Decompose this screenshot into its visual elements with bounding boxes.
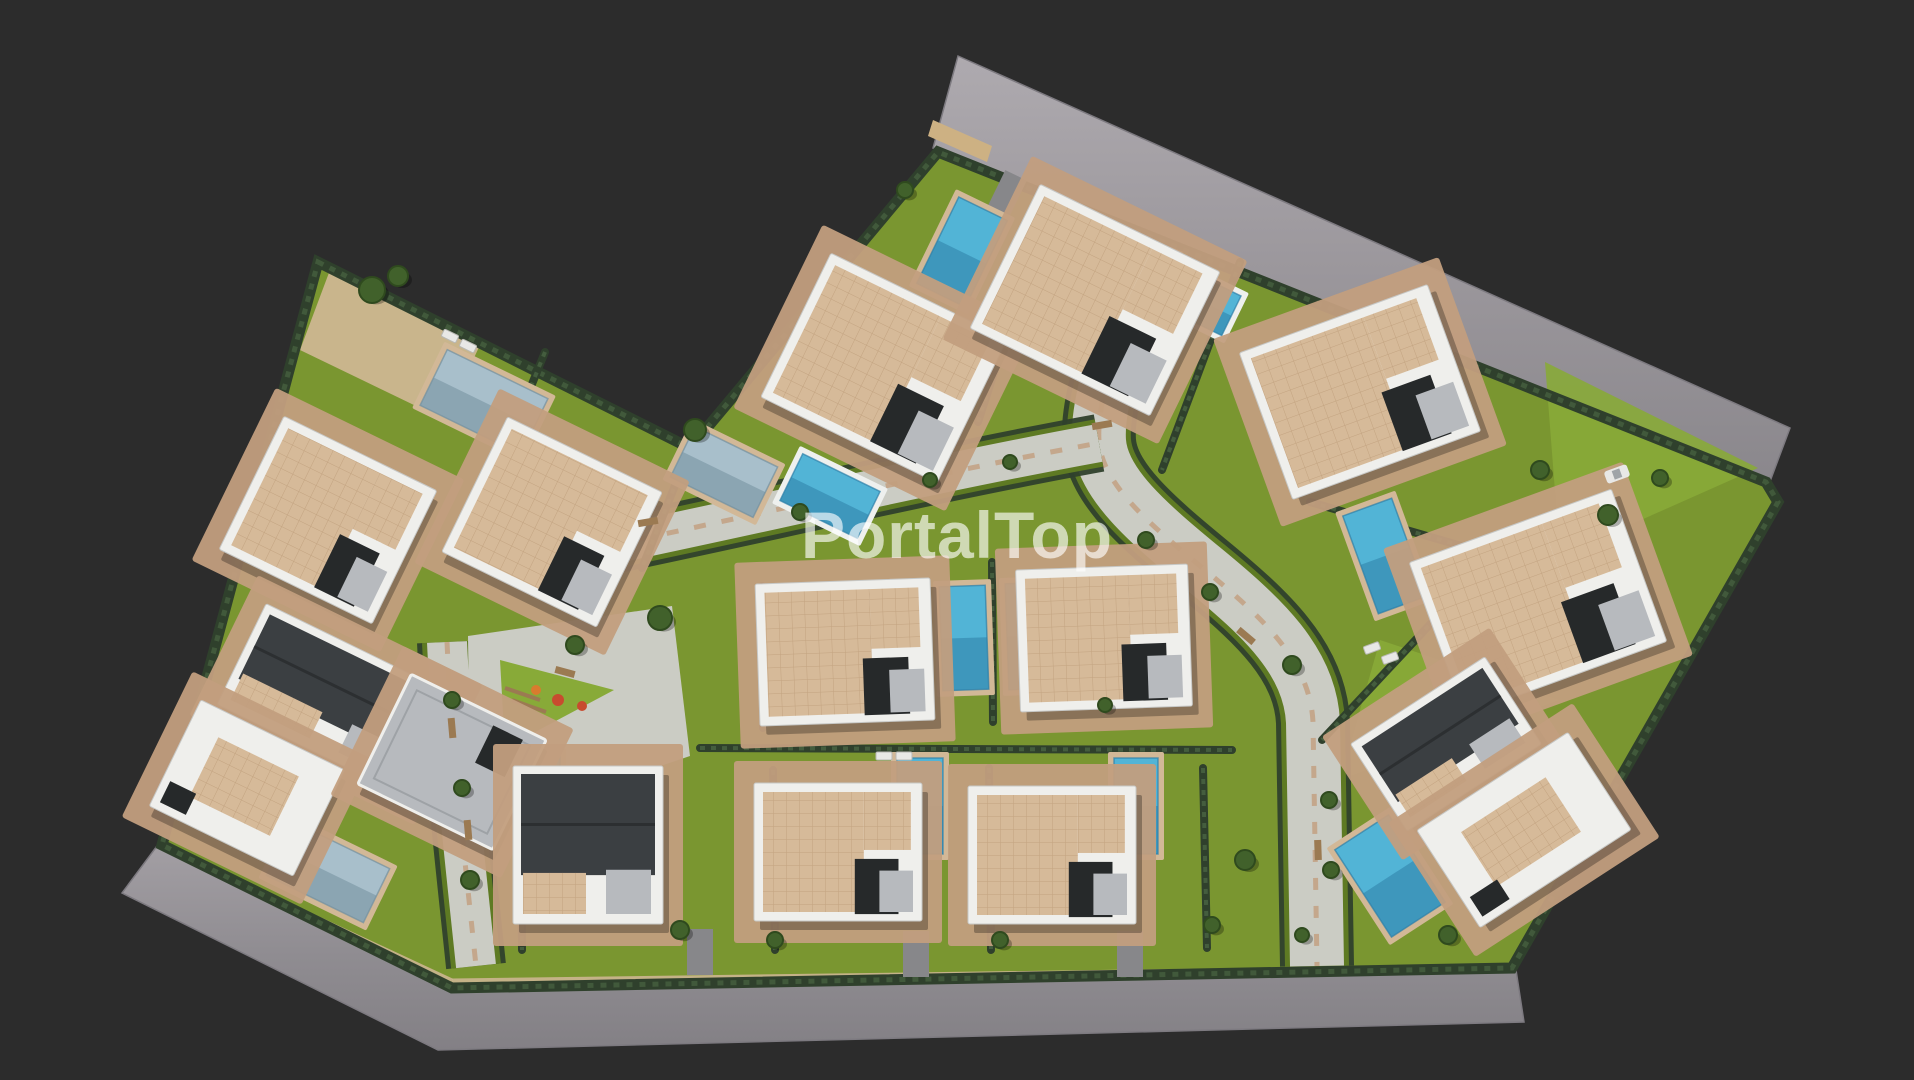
render-container: PortalTop [0,0,1914,1080]
tree [454,780,470,796]
tree [1323,862,1339,878]
playground-item [531,685,541,695]
villa-tile-grid-upper [1078,795,1125,853]
tree [1003,455,1017,469]
villa-tile-grid [763,792,864,912]
tree [648,606,672,630]
tree [1321,792,1337,808]
playground-item [552,694,564,706]
tree [566,636,584,654]
villa-tile-grid [764,589,873,717]
tree [1138,532,1154,548]
tree [1098,698,1112,712]
villa-flat-roof-annex [889,669,925,713]
tree [671,921,689,939]
tree [1204,917,1220,933]
tree [1439,926,1457,944]
tree [1295,928,1309,942]
bench-seat [1314,840,1322,860]
villa-tile-grid-upper [1128,573,1178,634]
site-plan-svg: PortalTop [0,0,1914,1080]
tree [461,871,479,889]
tree [923,473,937,487]
tree [992,932,1008,948]
villa-flat-roof-annex [879,871,913,912]
tree [1598,505,1618,525]
lounger-body [896,752,912,760]
villa-flat-roof-annex [606,870,651,914]
tree [767,932,783,948]
villa [734,555,955,748]
villa [948,764,1156,946]
tree [1652,470,1668,486]
villa-tile-grid-upper [869,587,920,648]
villa-flat-roof-annex [1093,874,1127,915]
lounger-body [876,752,892,760]
villa-tile-grid-upper [864,792,911,850]
tree [1283,656,1301,674]
tree [444,692,460,708]
villa-flat-roof-annex [1147,655,1183,699]
tree [1202,584,1218,600]
tree [897,182,913,198]
sun-lounger [876,752,892,760]
tree [388,266,408,286]
bench [1314,840,1322,860]
villa-tile-grid [523,873,586,914]
tree [1235,850,1255,870]
watermark-text: PortalTop [801,498,1113,572]
villa-tile-grid [1025,575,1132,703]
tree [684,419,706,441]
villa [734,761,942,943]
hedge-texture [700,748,1232,750]
villa [493,744,683,946]
villa-tile-grid [977,795,1078,915]
sun-lounger [896,752,912,760]
tree [1531,461,1549,479]
tree [359,277,385,303]
playground-item [577,701,587,711]
